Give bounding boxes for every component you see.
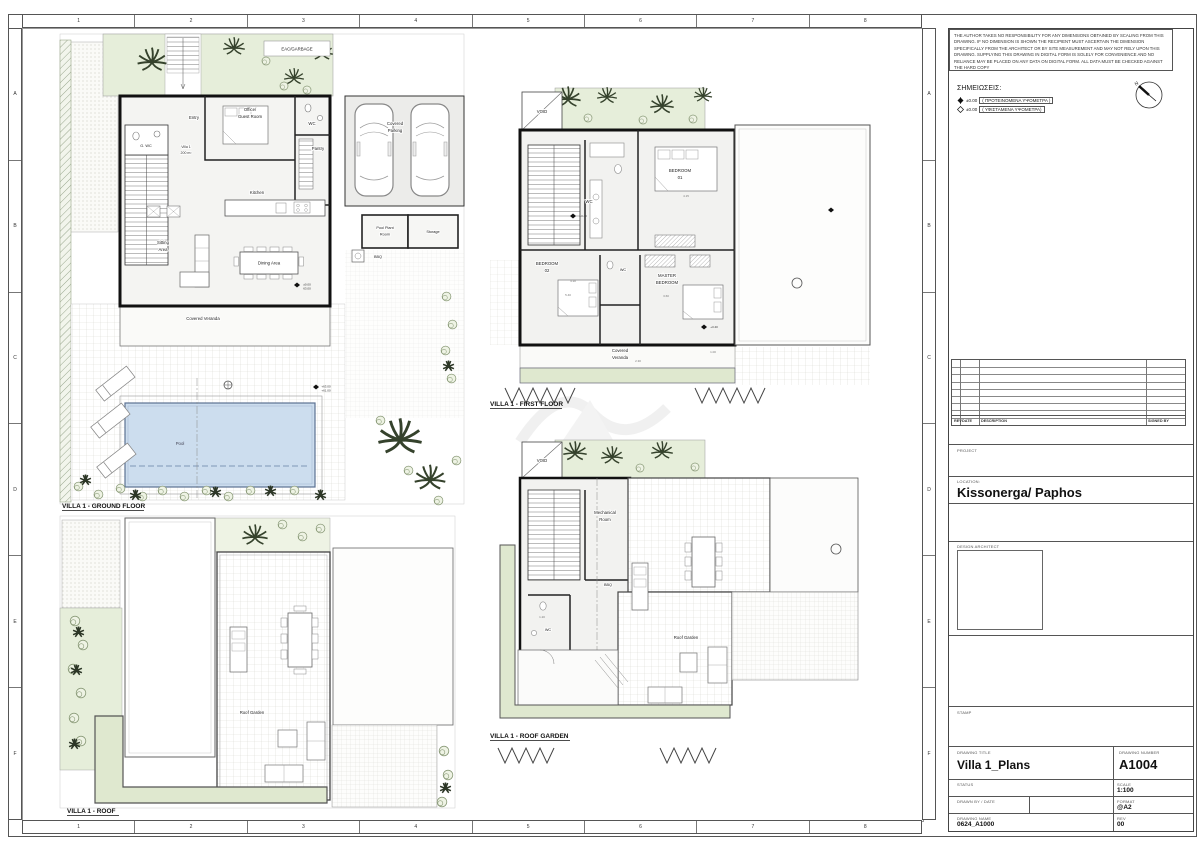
first-title: VILLA 1 - FIRST FLOOR — [490, 401, 563, 409]
toilet-icon — [540, 602, 546, 610]
first-building — [520, 130, 748, 368]
grid-row: C — [9, 293, 21, 425]
svg-text:1.00: 1.00 — [710, 350, 716, 354]
svg-text:Area: Area — [158, 247, 168, 252]
disclaimer-note: THE AUTHOR TAKES NO RESPONSIBILITY FOR A… — [949, 29, 1173, 71]
room-label-office: Office/ — [244, 107, 257, 112]
grid-col: 8 — [810, 821, 921, 833]
toilet-icon — [133, 132, 139, 140]
bed-master — [683, 285, 723, 319]
room-label-wc: WC — [585, 199, 592, 204]
grid-col: 4 — [360, 15, 472, 27]
signedby-col-header: SIGNED BY — [1146, 419, 1185, 423]
room-label-void: VOID — [537, 109, 548, 114]
grid-row: D — [923, 424, 935, 556]
grid-row: B — [923, 161, 935, 293]
eac-garbage: EAC/GARBAGE — [264, 41, 330, 56]
drawing-title-value: Villa 1_Plans — [957, 758, 1030, 772]
grid-col: 1 — [23, 821, 135, 833]
basin-icon — [531, 630, 536, 635]
svg-text:Veranda: Veranda — [612, 355, 629, 360]
svg-text:4.30: 4.30 — [570, 279, 576, 283]
plan-title-roof-garden: VILLA 1 - ROOF GARDEN — [490, 733, 569, 740]
svg-text:Guest Room: Guest Room — [238, 114, 263, 119]
bush-icon — [70, 616, 80, 626]
grid-col: 2 — [135, 821, 247, 833]
date-col-header: DATE — [960, 419, 979, 423]
roof-slab — [125, 518, 215, 757]
room-label-bbq: BBQ — [374, 255, 382, 259]
bush-icon — [639, 116, 647, 124]
location-value: Kissonerga/ Paphos — [957, 485, 1082, 500]
room-label-bbq: BBQ — [604, 583, 612, 587]
roof-garden-area: Roof Garden — [217, 552, 330, 800]
grid-col: 7 — [697, 821, 809, 833]
rg-landscape — [555, 440, 705, 478]
room-label-veranda: Covered Veranda — [186, 316, 220, 321]
grid-row: E — [923, 556, 935, 688]
grid-col: 6 — [585, 15, 697, 27]
plan-title-first: VILLA 1 - FIRST FLOOR — [490, 401, 563, 408]
room-label-bedroom1: BEDROOM — [669, 168, 692, 173]
toilet-icon — [305, 104, 311, 112]
stamp-label: STAMP — [957, 710, 971, 715]
svg-text:5.40: 5.40 — [565, 293, 571, 297]
svg-text:01: 01 — [678, 175, 683, 180]
room-label-pool-plant: Pool Plant — [376, 226, 394, 230]
room-label-pantry: Pantry — [312, 146, 325, 151]
palm-icon — [378, 418, 421, 452]
room-label-roof-garden: Roof Garden — [240, 710, 265, 715]
grid-row: D — [9, 424, 21, 556]
format-value: @A2 — [1117, 804, 1132, 811]
svg-text:Room: Room — [380, 233, 390, 237]
room-label-kitchen: Kitchen — [250, 190, 265, 195]
svg-text:BEDROOM: BEDROOM — [656, 280, 679, 285]
status-label: STATUS — [957, 782, 973, 787]
room-label-gwc: G. WC — [140, 144, 152, 148]
svg-text:3.60: 3.60 — [663, 294, 669, 298]
room-label-wc2: WC — [620, 268, 627, 272]
grid-col: 7 — [697, 15, 809, 27]
grid-col: 3 — [248, 821, 360, 833]
room-label-pool: Pool — [176, 441, 185, 446]
grid-ref-top: 1 2 3 4 5 6 7 8 — [22, 14, 922, 28]
grid-col: 5 — [473, 821, 585, 833]
basin-icon — [317, 115, 322, 120]
design-architect-box — [957, 550, 1043, 630]
eac-garbage-label: EAC/GARBAGE — [281, 47, 312, 52]
drawing-number-value: A1004 — [1119, 757, 1157, 772]
north-arrow-icon: N — [1131, 77, 1165, 111]
bush-icon — [636, 464, 644, 472]
room-label-dining: Dining Area — [258, 261, 281, 266]
grid-row: F — [9, 688, 21, 819]
svg-text:Room: Room — [599, 517, 611, 522]
ground-building — [120, 96, 330, 346]
grid-col: 1 — [23, 15, 135, 27]
floor-plan-ground: EAC/GARBAGE — [58, 28, 468, 523]
grid-col: 5 — [473, 15, 585, 27]
grid-row: A — [9, 29, 21, 161]
note-existing: ±0.00 ( ΥΦΙΣΤΑΜΕΝΑ ΥΨΟΜΕΤΡΑ) — [957, 106, 1045, 113]
room-label-entry: Entry — [189, 115, 200, 120]
description-col-header: DESCRIPTION — [979, 419, 1146, 423]
room-label-master: MASTER — [658, 273, 676, 278]
room-label-bedroom2: BEDROOM — [536, 261, 559, 266]
note-proposed: ±0.00 ( ΠΡΟΤΕΙΝΟΜΕΝΑ ΥΨΟΜΕΤΡΑ ) — [957, 97, 1053, 104]
floor-plan-roof: Roof Garden VILLA 1 - ROOF — [58, 510, 468, 822]
grid-col: 3 — [248, 15, 360, 27]
location-label: LOCATION: — [957, 479, 980, 484]
drawing-name-value: 0624_A1000 — [957, 821, 994, 828]
pergola-zigzag — [498, 748, 716, 763]
room-label-wc: WC — [545, 628, 552, 632]
svg-text:+3.40: +3.40 — [710, 325, 718, 329]
bush-icon — [303, 86, 311, 94]
void-box: VOID — [522, 92, 562, 130]
svg-text:63.00: 63.00 — [303, 287, 311, 291]
rg-terrace-lower — [518, 650, 628, 705]
grid-row: E — [9, 556, 21, 688]
svg-text:1.20: 1.20 — [539, 615, 545, 619]
grid-row: F — [923, 688, 935, 819]
roof-title: VILLA 1 - ROOF — [67, 808, 119, 816]
pool — [125, 403, 315, 487]
bed-bedroom2 — [558, 280, 598, 316]
rev-col-header: REV — [952, 419, 960, 423]
rg-title: VILLA 1 - ROOF GARDEN — [490, 733, 570, 741]
drawing-number-label: DRAWING NUMBER — [1119, 750, 1159, 755]
notes-title: ΣΗΜΕΙΩΣΕΙΣ: — [957, 85, 1001, 92]
void-box: VOID — [522, 442, 562, 478]
scale-value: 1:100 — [1117, 787, 1134, 794]
grid-row: B — [9, 161, 21, 293]
drawing-sheet: { "sheet": { "grid_cols": ["1","2","3","… — [0, 0, 1200, 849]
bush-icon — [280, 82, 288, 90]
room-label-wc: WC — [308, 121, 315, 126]
revision-table: REV DATE DESCRIPTION SIGNED BY — [951, 359, 1186, 426]
grid-ref-bottom: 1 2 3 4 5 6 7 8 — [22, 820, 922, 834]
basin-icon — [154, 131, 160, 137]
toilet-icon — [615, 165, 622, 174]
villa-area: 200 m² — [181, 151, 193, 155]
design-architect-label: DESIGN ARCHITECT — [957, 544, 999, 549]
wardrobe — [645, 255, 675, 267]
elevation-marker-icon — [957, 97, 964, 104]
car-icon — [355, 104, 393, 196]
toilet-icon — [607, 261, 613, 269]
flat-roof-right — [735, 125, 870, 345]
svg-text:Parking: Parking — [388, 128, 403, 133]
bushes-bottom-right — [437, 746, 453, 807]
grid-row: A — [923, 29, 935, 161]
svg-text:+3.40: +3.40 — [579, 214, 587, 218]
wardrobe — [655, 235, 695, 247]
wardrobe — [690, 255, 710, 267]
drawing-title-label: DRAWING TITLE — [957, 750, 991, 755]
title-block: THE AUTHOR TAKES NO RESPONSIBILITY FOR A… — [948, 28, 1194, 832]
project-label: PROJECT — [957, 448, 977, 453]
grid-ref-left: A B C D E F — [8, 28, 22, 820]
grid-col: 8 — [810, 15, 921, 27]
bathtub-icon — [590, 143, 624, 157]
grid-row: C — [923, 293, 935, 425]
elevation-marker-icon — [957, 106, 964, 113]
plan-title-roof: VILLA 1 - ROOF — [67, 808, 116, 815]
room-label-parking: Covered — [387, 121, 404, 126]
roof-garden-terrace — [618, 478, 858, 705]
grid-col: 4 — [360, 821, 472, 833]
bush-icon — [262, 57, 270, 65]
svg-text:4.15: 4.15 — [683, 194, 689, 198]
plan-title-ground: VILLA 1 - GROUND FLOOR — [62, 503, 145, 510]
floor-plan-first: VOID — [490, 85, 880, 435]
outdoor-dining-table — [685, 537, 722, 587]
room-label-void: VOID — [537, 458, 548, 463]
room-label-mechanical: Mechanical — [594, 510, 616, 515]
room-label-sitting: Sitting — [157, 240, 170, 245]
svg-text:+61.00: +61.00 — [321, 389, 331, 393]
room-label-veranda: Covered — [612, 348, 629, 353]
grid-ref-right: A B C D E F — [922, 28, 936, 820]
villa-name: Villa 1 — [181, 145, 191, 149]
bbq-counter — [632, 563, 648, 610]
entry-walkway — [165, 34, 201, 96]
bbq-unit — [352, 250, 364, 262]
first-veranda — [520, 368, 735, 383]
drawn-by-label: DRAWN BY / DATE — [957, 799, 995, 804]
svg-text:02: 02 — [545, 268, 550, 273]
floor-plan-roof-garden: VOID — [490, 435, 880, 765]
grid-col: 2 — [135, 15, 247, 27]
room-label-roof-garden: Roof Garden — [674, 635, 699, 640]
room-label-storage: Storage — [426, 230, 439, 234]
car-icon — [411, 104, 449, 196]
kitchen-island — [230, 627, 247, 672]
lower-roof — [332, 548, 453, 807]
grid-col: 6 — [585, 821, 697, 833]
rev-value: 00 — [1117, 821, 1124, 828]
parking-garage — [345, 96, 464, 206]
svg-text:2.30: 2.30 — [635, 359, 641, 363]
